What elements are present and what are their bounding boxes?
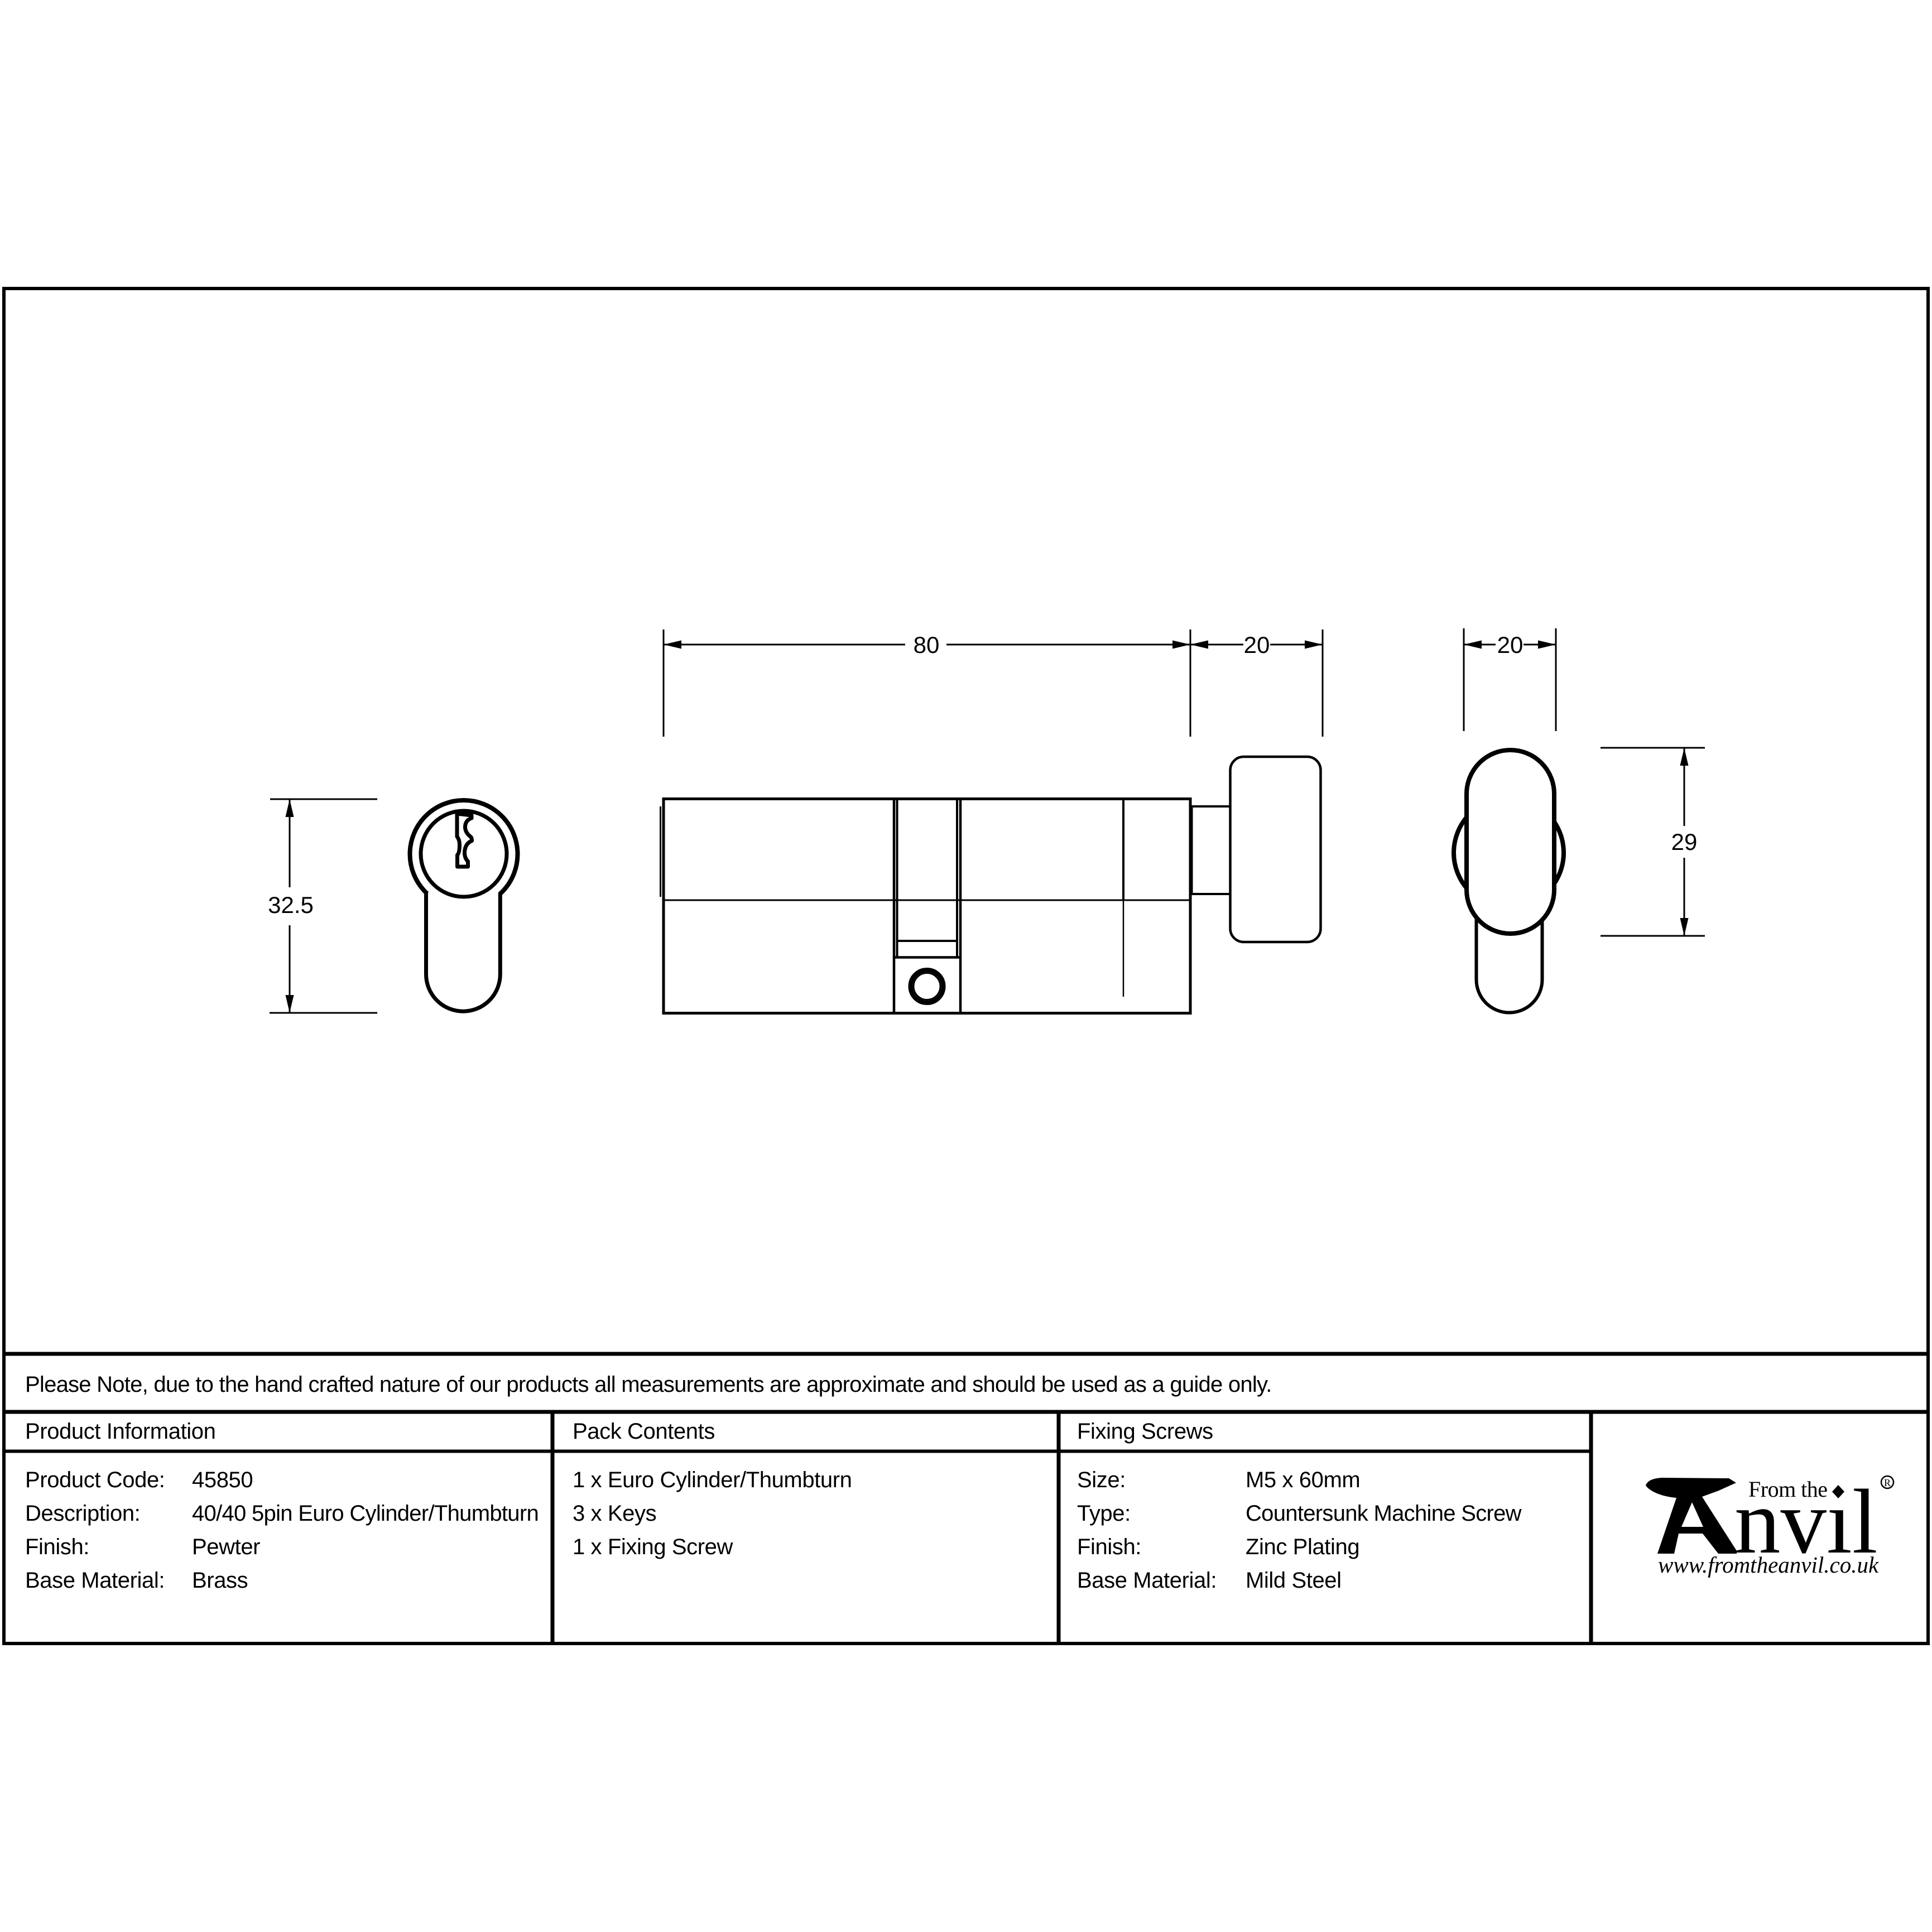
svg-text:Finish:: Finish: xyxy=(25,1535,89,1559)
svg-text:Product Information: Product Information xyxy=(25,1419,215,1444)
svg-text:Description:: Description: xyxy=(25,1501,140,1526)
svg-text:Fixing Screws: Fixing Screws xyxy=(1077,1419,1213,1444)
svg-text:Countersunk Machine Screw: Countersunk Machine Screw xyxy=(1246,1501,1522,1526)
svg-text:80: 80 xyxy=(914,632,940,658)
svg-text:Zinc Plating: Zinc Plating xyxy=(1246,1535,1359,1559)
svg-text:3 x Keys: 3 x Keys xyxy=(573,1501,656,1526)
svg-text:M5 x 60mm: M5 x 60mm xyxy=(1246,1468,1360,1492)
svg-text:R: R xyxy=(1884,1477,1891,1488)
svg-text:Product Code:: Product Code: xyxy=(25,1468,165,1492)
svg-text:Pack Contents: Pack Contents xyxy=(573,1419,715,1444)
svg-text:Pewter: Pewter xyxy=(192,1535,260,1559)
svg-text:Brass: Brass xyxy=(192,1568,248,1593)
svg-text:Please Note, due to the hand c: Please Note, due to the hand crafted nat… xyxy=(25,1372,1272,1397)
svg-text:29: 29 xyxy=(1671,829,1698,855)
svg-text:20: 20 xyxy=(1244,632,1270,658)
svg-text:1 x Fixing Screw: 1 x Fixing Screw xyxy=(573,1535,733,1559)
svg-text:32.5: 32.5 xyxy=(268,892,314,918)
svg-text:www.fromtheanvil.co.uk: www.fromtheanvil.co.uk xyxy=(1658,1552,1879,1578)
svg-text:45850: 45850 xyxy=(192,1468,253,1492)
svg-text:Base Material:: Base Material: xyxy=(25,1568,165,1593)
svg-text:1 x Euro Cylinder/Thumbturn: 1 x Euro Cylinder/Thumbturn xyxy=(573,1468,852,1492)
svg-text:Base Material:: Base Material: xyxy=(1077,1568,1217,1593)
svg-text:Size:: Size: xyxy=(1077,1468,1126,1492)
svg-text:Mild Steel: Mild Steel xyxy=(1246,1568,1342,1593)
svg-text:40/40 5pin Euro Cylinder/Thumb: 40/40 5pin Euro Cylinder/Thumbturn xyxy=(192,1501,539,1526)
svg-text:20: 20 xyxy=(1497,632,1524,658)
svg-text:Finish:: Finish: xyxy=(1077,1535,1141,1559)
svg-text:Type:: Type: xyxy=(1077,1501,1131,1526)
